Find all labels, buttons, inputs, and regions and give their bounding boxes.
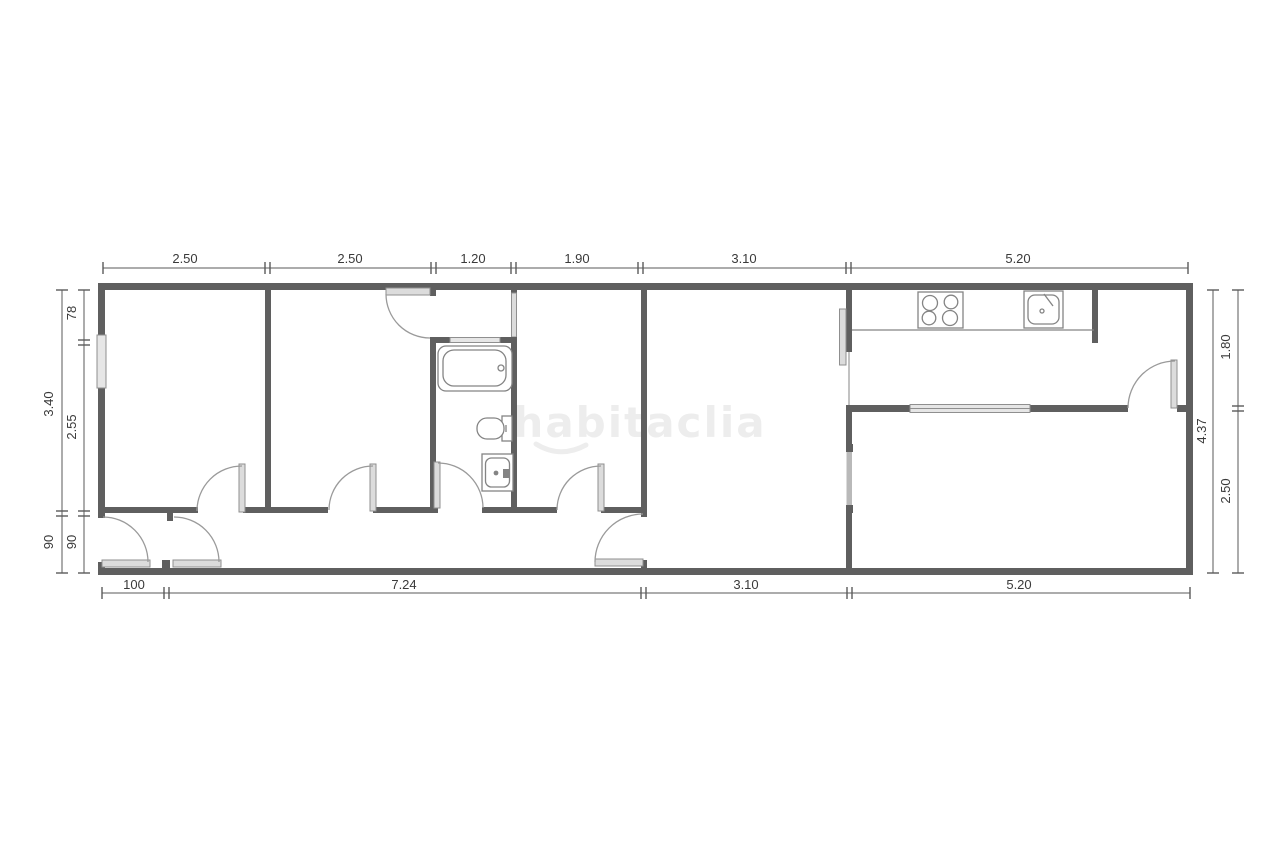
dim-label: 2.55 (64, 414, 79, 439)
dimension-right-outer: 1.80 2.50 (1218, 290, 1244, 573)
wall-segment (373, 507, 438, 513)
dim-label: 3.10 (733, 577, 758, 592)
door-leaf (847, 450, 853, 508)
door-leaf (512, 293, 517, 337)
dim-label: 5.20 (1006, 577, 1031, 592)
dim-label: 100 (123, 577, 145, 592)
wall-segment (243, 507, 328, 513)
floor-plan-page: habitaclia (0, 0, 1280, 853)
bathroom-door (434, 462, 483, 508)
wall-segment (1177, 405, 1189, 412)
bathroom-fixtures (438, 346, 513, 491)
dim-label: 2.50 (337, 251, 362, 266)
stove-icon (918, 292, 963, 328)
watermark-text: habitaclia (513, 398, 766, 447)
washbasin-faucet (503, 469, 510, 478)
kitchen-door (1128, 360, 1177, 408)
watermark: habitaclia (513, 398, 766, 452)
dim-label: 7.24 (391, 577, 416, 592)
wall-segment (482, 507, 557, 513)
bedroom1-door (197, 464, 245, 512)
door-leaf (840, 309, 847, 365)
front-door (102, 517, 150, 567)
dim-label: 1.80 (1218, 334, 1233, 359)
dim-label: 3.40 (41, 391, 56, 416)
door-swing-arc (557, 466, 601, 510)
door-leaf (370, 464, 376, 511)
wall-segment (265, 290, 271, 510)
dimension-bottom: 100 7.24 3.10 5.20 (102, 577, 1190, 599)
bedroom2-door (329, 464, 376, 511)
wall-segment (1186, 283, 1193, 575)
door-leaf (173, 560, 221, 567)
dim-label: 1.20 (460, 251, 485, 266)
wall-segment (1030, 405, 1128, 412)
wall-segment (98, 283, 105, 518)
wall-nub (846, 505, 853, 513)
toilet-icon (477, 416, 512, 441)
wall-nub (1092, 290, 1098, 343)
door-swing-arc (438, 463, 483, 508)
wall-segment (105, 507, 198, 513)
window (97, 335, 106, 388)
door-leaf (239, 464, 245, 512)
door-swing-arc (329, 466, 373, 510)
wall-segment (846, 512, 852, 575)
washbasin-tap (494, 471, 499, 476)
door-leaf (598, 464, 604, 511)
door-swing-arc (595, 514, 643, 562)
door-swing-arc (1128, 361, 1175, 408)
door-swing-arc (103, 517, 148, 562)
toilet-bowl (477, 418, 504, 439)
dim-label: 90 (41, 535, 56, 549)
dim-label: 3.10 (731, 251, 756, 266)
dim-label: 90 (64, 535, 79, 549)
closet-door (386, 288, 430, 338)
kitchen-sink-icon (1024, 291, 1063, 328)
wall-segment (98, 283, 1193, 290)
wall-nub (167, 513, 173, 521)
door-leaf (1171, 360, 1177, 408)
closet-door-leaf (450, 338, 500, 343)
dim-label: 1.90 (564, 251, 589, 266)
door-swing-arc (197, 466, 242, 511)
dim-label: 5.20 (1005, 251, 1030, 266)
kitchen-fixtures (852, 291, 1094, 330)
door-leaf (386, 288, 430, 295)
washbasin-icon (482, 454, 513, 491)
entry-inner-door (173, 517, 221, 567)
wall-segment (641, 290, 647, 517)
door-leaf (434, 462, 440, 508)
dim-label: 2.50 (172, 251, 197, 266)
corridor-living-door (595, 514, 643, 566)
bedroom3-door (557, 464, 604, 511)
wall-nub (162, 560, 170, 572)
dimension-left-inner: 78 2.55 90 (64, 290, 90, 573)
wall-segment (601, 507, 647, 513)
dim-label: 2.50 (1218, 478, 1233, 503)
door-leaf (102, 560, 150, 567)
wall-segment (430, 290, 436, 296)
wall-segment (846, 405, 910, 412)
door-swing-arc (174, 517, 219, 562)
dimension-top: 2.50 2.50 1.20 1.90 3.10 5.20 (103, 251, 1188, 274)
wall-segment (846, 283, 852, 352)
dim-label: 4.37 (1194, 418, 1209, 443)
door-leaf (595, 559, 643, 566)
wall-nub (846, 444, 853, 452)
bathtub-icon (438, 346, 512, 391)
dimension-right-inner: 4.37 (1194, 290, 1219, 573)
floor-plan-drawing: habitaclia (0, 0, 1280, 853)
door-swing-arc (386, 294, 430, 338)
dim-label: 78 (64, 306, 79, 320)
wall-segment (846, 407, 852, 450)
